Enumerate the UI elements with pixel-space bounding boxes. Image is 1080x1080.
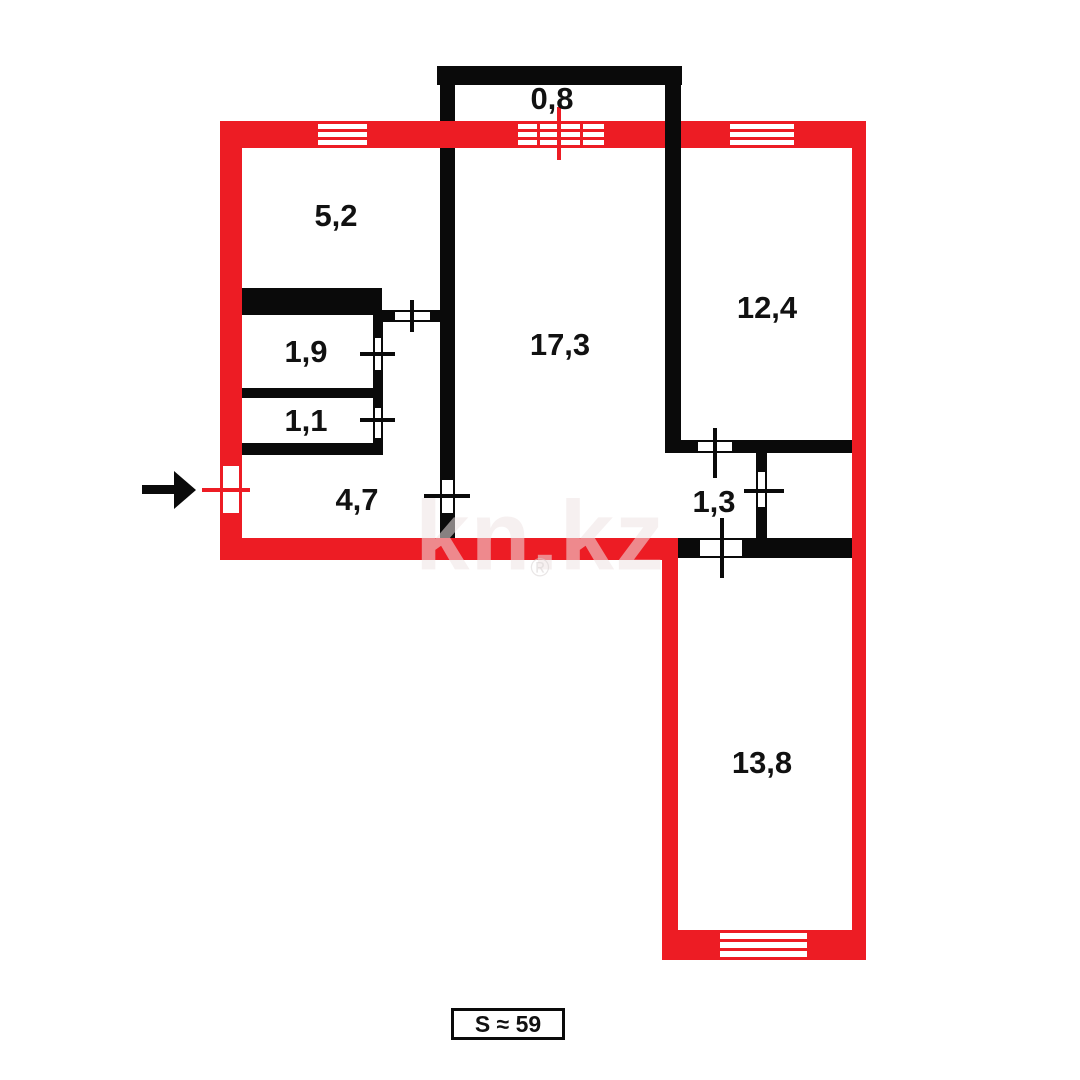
- total-area-box: S ≈ 59: [451, 1008, 565, 1040]
- door-tick-kitchen: [410, 300, 414, 332]
- room-label-bathroom: 1,9: [284, 334, 327, 370]
- room-label-bedroom-right: 12,4: [737, 290, 797, 326]
- entry-arrow-shaft: [142, 485, 176, 494]
- wall-living-bedroom-right: [665, 66, 681, 453]
- room-label-living-room: 17,3: [530, 327, 590, 363]
- door-toilet: [373, 408, 383, 438]
- door-tick-bathroom: [360, 352, 395, 356]
- door-tick-entry: [202, 488, 250, 492]
- registered-trademark-icon: ®: [530, 553, 549, 584]
- door-tick-toilet: [360, 418, 395, 422]
- exterior-wall-wing-left: [662, 538, 678, 960]
- room-label-toilet: 1,1: [284, 403, 327, 439]
- window-bedroom-bottom: [717, 930, 810, 960]
- floor-plan: 0,8 5,2 1,9 1,1 4,7 17,3 12,4 1,3 13,8 k…: [0, 0, 1080, 1080]
- wall-bedroom-right-bottom: [665, 440, 852, 453]
- room-label-kitchen: 5,2: [314, 198, 357, 234]
- room-label-hallway: 4,7: [335, 482, 378, 518]
- window-balcony: [515, 121, 607, 148]
- wall-bathroom-toilet: [242, 388, 383, 398]
- wall-toilet-hallway: [242, 443, 383, 455]
- wall-kitchen-bathroom-block: [242, 288, 382, 315]
- room-label-corridor: 1,3: [692, 484, 735, 520]
- exterior-wall-right: [852, 121, 866, 960]
- total-area-label: S ≈ 59: [475, 1011, 541, 1038]
- room-label-bedroom-bottom: 13,8: [732, 745, 792, 781]
- door-tick-closet: [744, 489, 784, 493]
- door-tick-bedroom-right: [713, 428, 717, 478]
- window-kitchen: [315, 121, 370, 148]
- entry-arrow-icon: [174, 471, 196, 509]
- door-tick-bedroom-bottom: [720, 518, 724, 578]
- window-bedroom-right: [727, 121, 797, 148]
- room-label-balcony: 0,8: [530, 81, 573, 117]
